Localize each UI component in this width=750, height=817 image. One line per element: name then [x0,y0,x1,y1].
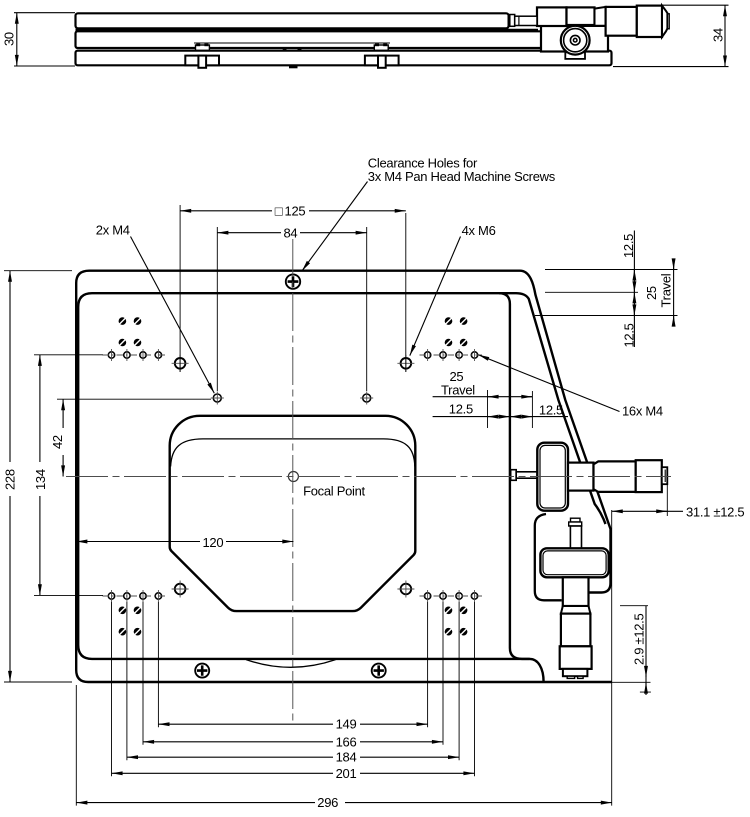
svg-text:2x M4: 2x M4 [96,223,130,238]
svg-text:149: 149 [336,717,357,732]
svg-text:12.5: 12.5 [539,403,563,418]
svg-text:4x M6: 4x M6 [462,223,496,238]
svg-text:Travel: Travel [441,383,475,398]
svg-text:201: 201 [336,766,357,781]
svg-text:84: 84 [284,226,298,241]
svg-text:120: 120 [203,535,224,550]
svg-text:3x M4 Pan Head Machine Screws: 3x M4 Pan Head Machine Screws [368,169,556,184]
svg-text:□ 125: □ 125 [275,203,306,218]
svg-text:42: 42 [50,435,65,449]
svg-text:12.5: 12.5 [449,402,473,417]
svg-text:12.5: 12.5 [621,323,636,347]
svg-text:Focal Point: Focal Point [303,484,365,499]
svg-text:2.9 ±12.5: 2.9 ±12.5 [632,614,647,665]
svg-text:31.1 ±12.5: 31.1 ±12.5 [686,505,744,520]
svg-text:Travel: Travel [659,273,674,307]
svg-text:25: 25 [644,286,659,300]
svg-text:296: 296 [317,795,338,810]
svg-text:16x M4: 16x M4 [622,404,663,419]
svg-text:34: 34 [711,28,726,42]
svg-text:30: 30 [2,32,17,46]
svg-text:166: 166 [336,734,357,749]
svg-text:12.5: 12.5 [621,234,636,258]
svg-text:134: 134 [33,469,48,490]
svg-text:228: 228 [3,469,18,490]
svg-text:184: 184 [336,750,357,765]
